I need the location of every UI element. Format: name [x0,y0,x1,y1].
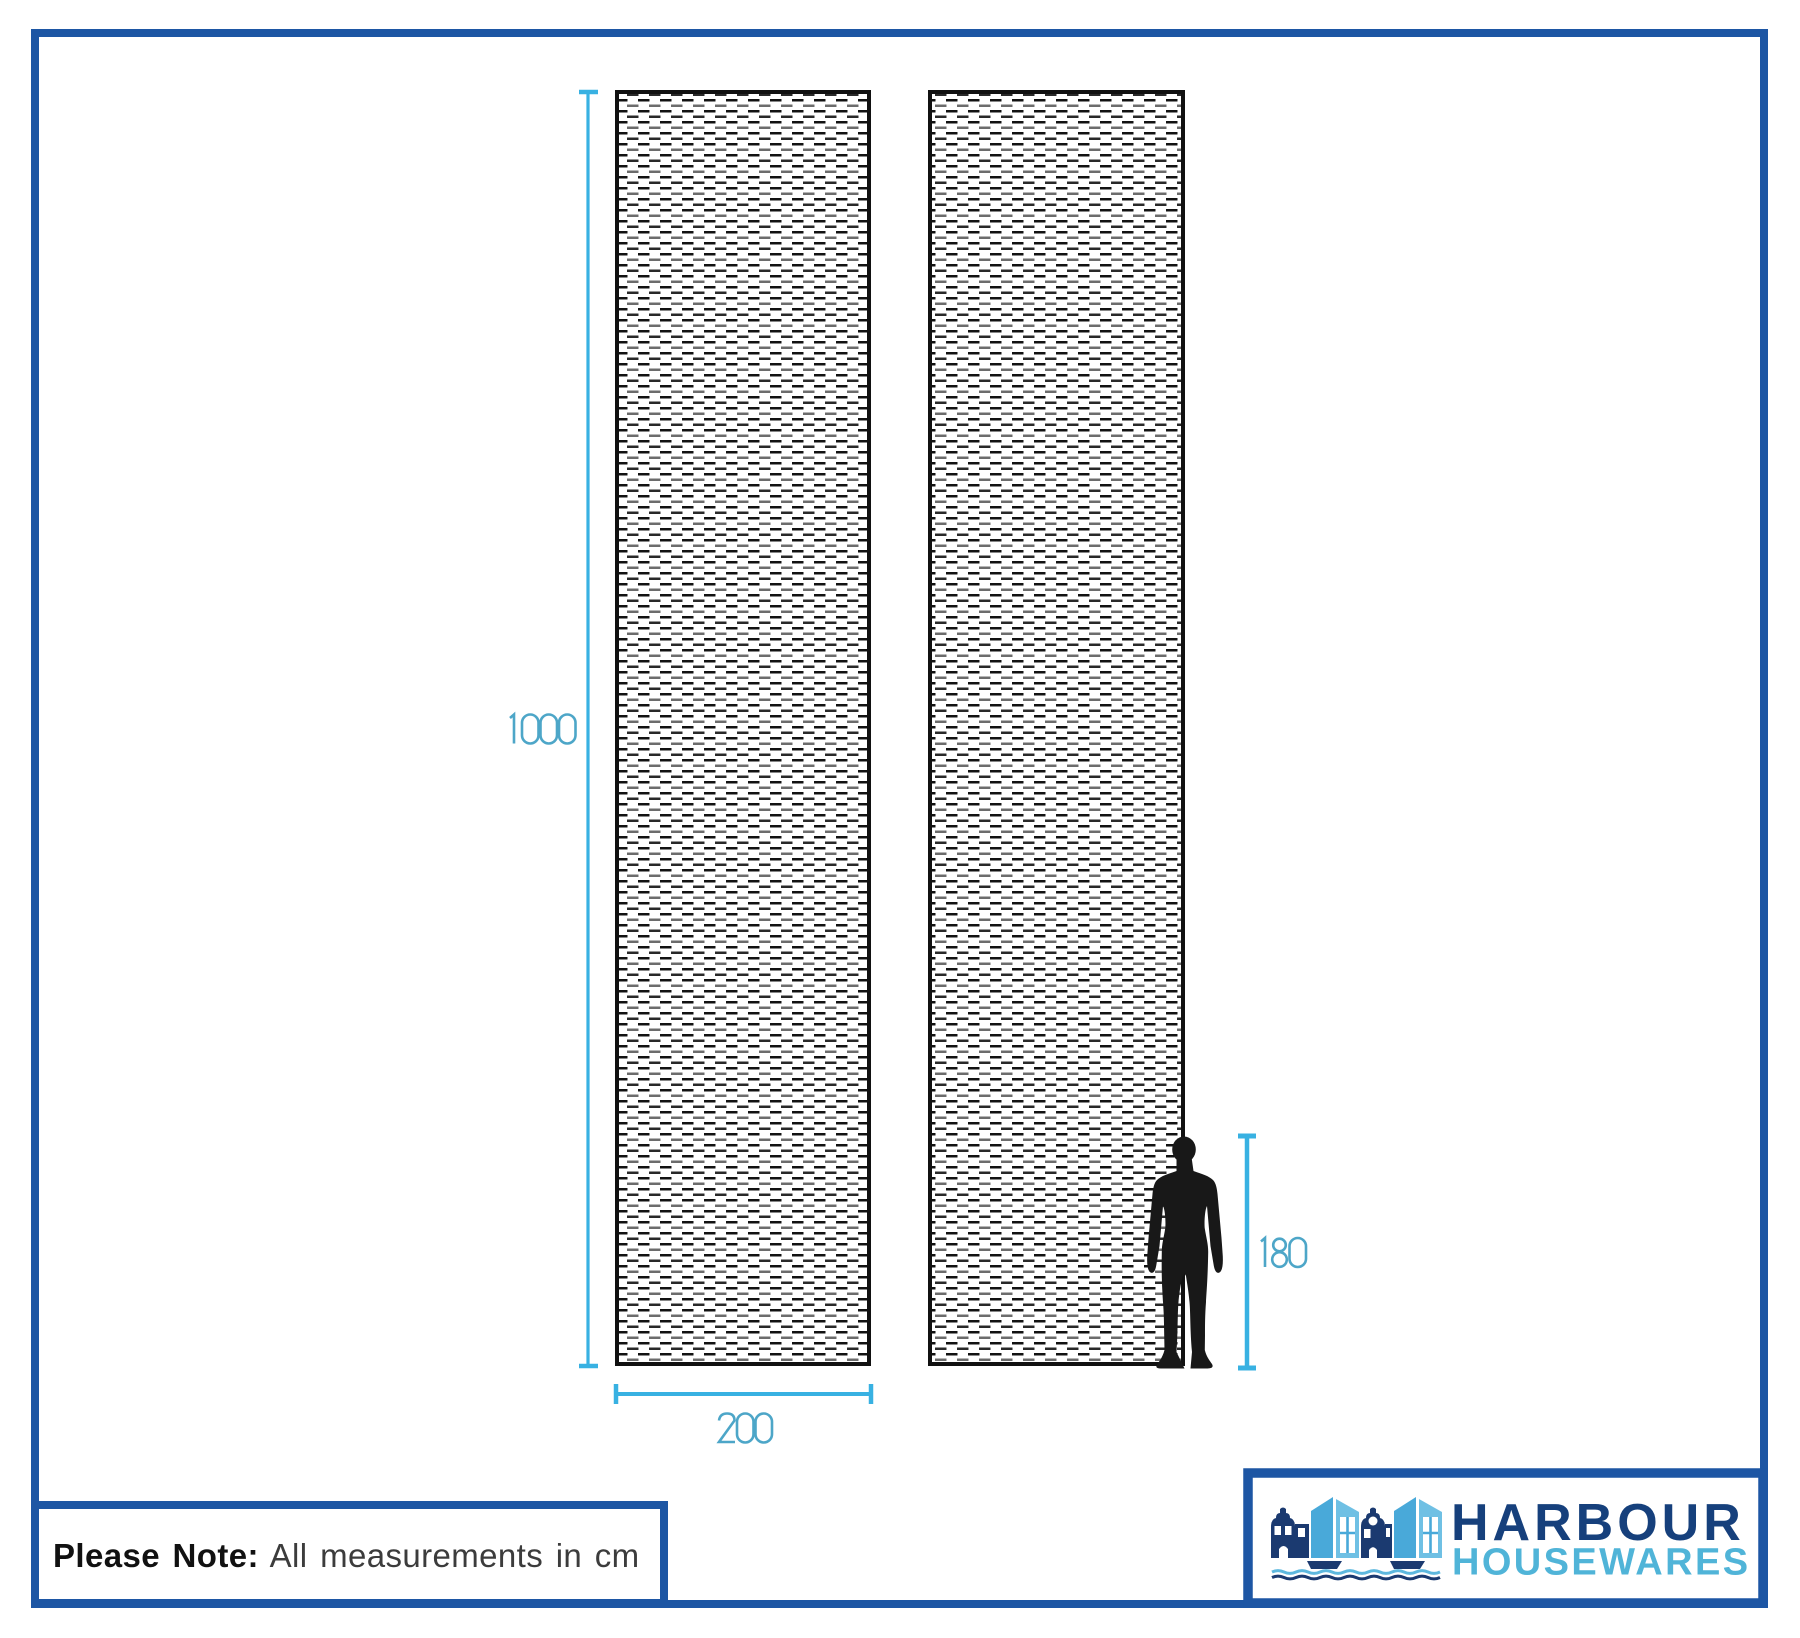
svg-text:HOUSEWARES: HOUSEWARES [1452,1542,1750,1584]
svg-text:Please Note: All measurements: Please Note: All measurements in cm [53,1537,640,1574]
